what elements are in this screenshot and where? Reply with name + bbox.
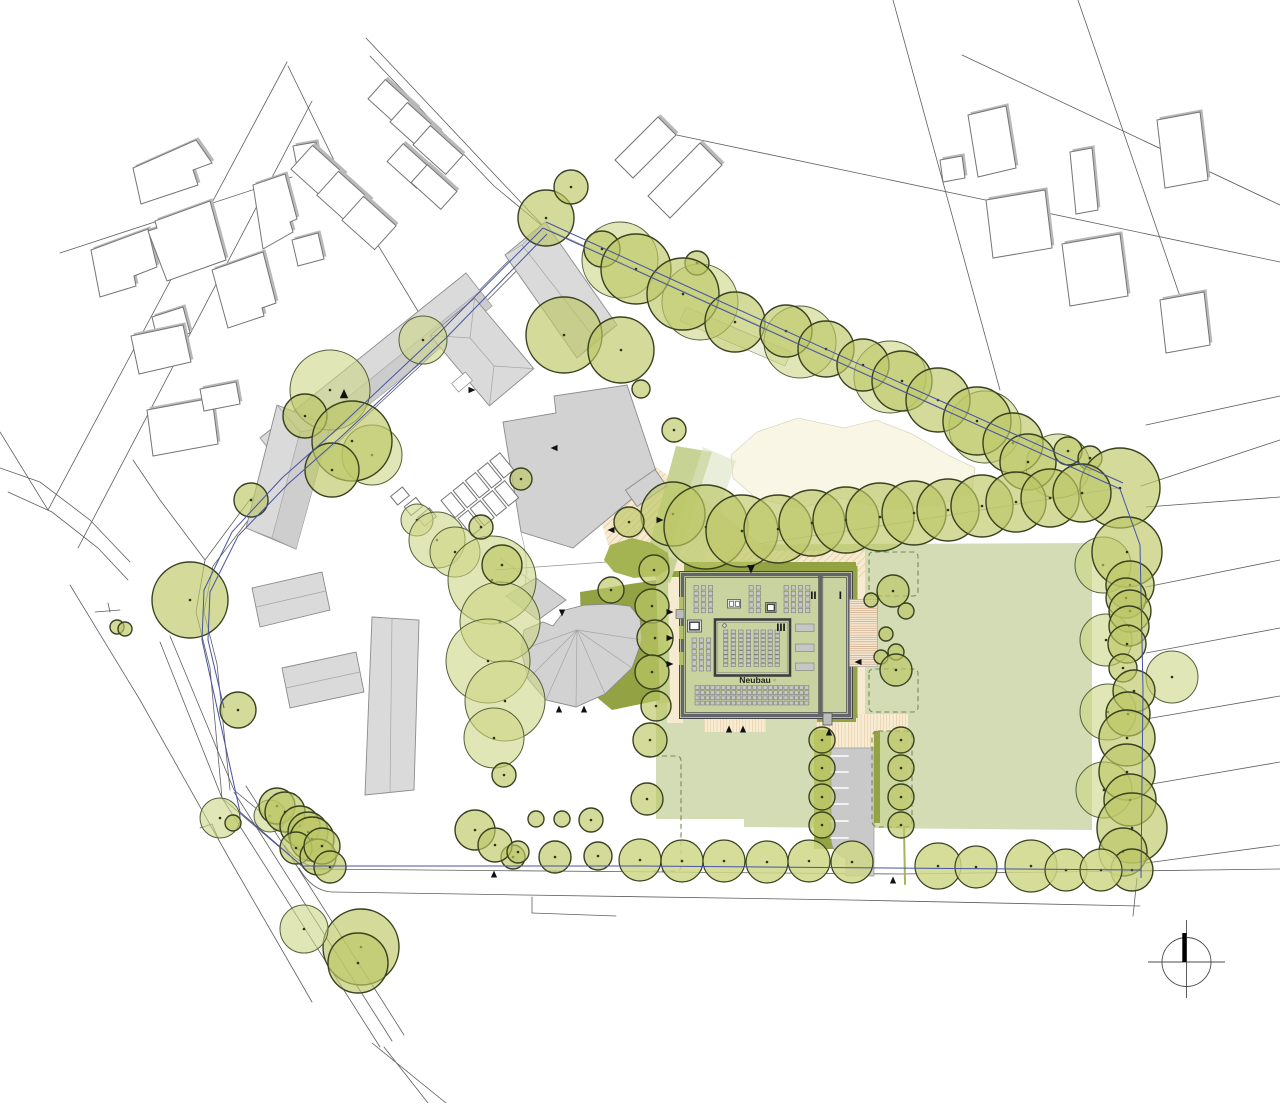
svg-text:Neubau: Neubau [739, 675, 771, 685]
